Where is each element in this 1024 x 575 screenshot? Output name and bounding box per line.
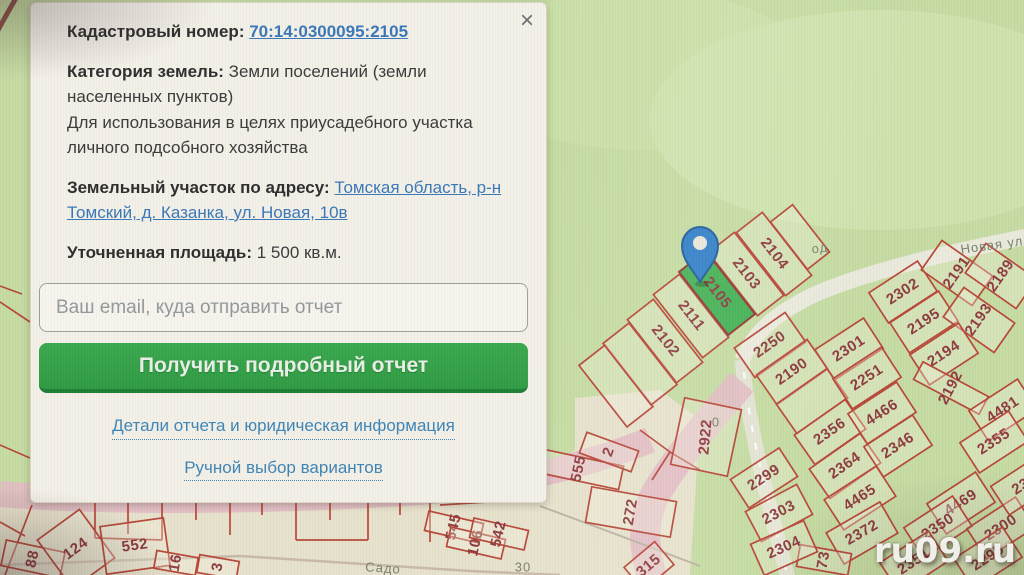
street-label: 30	[515, 559, 531, 574]
pin-hole	[693, 236, 707, 250]
email-input[interactable]	[39, 283, 528, 332]
category-row: Категория земель: Земли поселений (земли…	[67, 59, 520, 161]
parcel-info-popup: × Кадастровый номер: 70:14:0300095:2105 …	[30, 2, 547, 503]
address-row: Земельный участок по адресу: Томская обл…	[67, 175, 520, 226]
cadastral-number-row: Кадастровый номер: 70:14:0300095:2105	[67, 19, 520, 45]
category-label: Категория земель:	[67, 62, 224, 81]
cadastral-number-label: Кадастровый номер:	[67, 22, 244, 41]
site-watermark: ru09.ru	[874, 531, 1016, 571]
close-icon[interactable]: ×	[520, 9, 534, 33]
report-details-link[interactable]: Детали отчета и юридическая информация	[112, 413, 455, 440]
area-row: Уточненная площадь: 1 500 кв.м.	[67, 240, 520, 266]
street-label: 0	[712, 414, 720, 429]
usage-line-1: Для использования в целях приусадебного …	[67, 110, 520, 136]
street-label: од	[811, 239, 829, 256]
address-label: Земельный участок по адресу:	[67, 178, 330, 197]
pin-shadow	[695, 281, 709, 287]
street-label: Садо	[365, 559, 402, 575]
manual-selection-link[interactable]: Ручной выбор вариантов	[184, 455, 383, 482]
cadastral-number-link[interactable]: 70:14:0300095:2105	[249, 22, 408, 41]
area-label: Уточненная площадь:	[67, 243, 252, 262]
cadastral-map-app: 2102211121032104210522502190235623644465…	[0, 0, 1024, 575]
usage-line-2: личного подсобного хозяйства	[67, 135, 520, 161]
parcel-number: 88	[22, 548, 42, 569]
area-value: 1 500 кв.м.	[257, 243, 342, 262]
get-report-button[interactable]: Получить подробный отчет	[39, 343, 528, 393]
parcel-number: 16	[166, 553, 186, 573]
